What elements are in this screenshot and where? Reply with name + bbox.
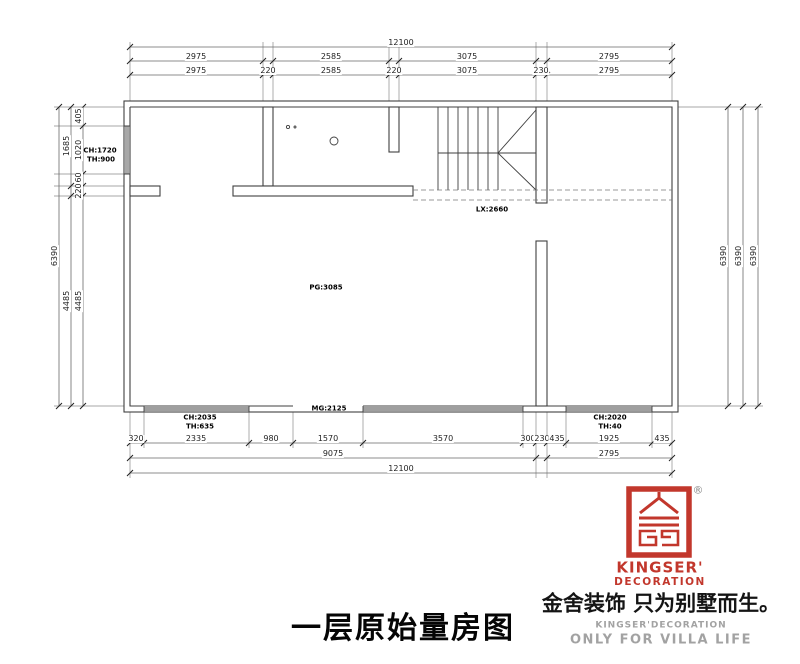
bottom-window-2	[363, 406, 523, 412]
plan-label: MG:2125	[311, 406, 348, 413]
dim-label: 980	[262, 435, 279, 443]
plan-label: CH:2035	[182, 415, 217, 422]
plan-label: TH:900	[86, 157, 116, 164]
dim-label: 2795	[598, 53, 620, 61]
walls	[124, 101, 678, 412]
window-symbols	[124, 126, 652, 412]
bottom-window-3	[566, 406, 652, 412]
dim-label: 230	[532, 67, 549, 75]
dim-label: 220	[259, 67, 276, 75]
logo-wordmark: KINGSER'	[616, 561, 703, 576]
dimension-ticks	[56, 44, 761, 476]
dim-label: 435	[653, 435, 670, 443]
dim-label: 220	[385, 67, 402, 75]
dim-label: 2335	[185, 435, 207, 443]
dim-label: 4485	[75, 290, 83, 312]
plan-label: TH:635	[185, 424, 215, 431]
dim-label: 6390	[720, 245, 728, 267]
drawing-page: 1210029752585307527952975220258522030752…	[0, 0, 800, 664]
plan-label: PG:3085	[308, 285, 343, 292]
brand-slogan: 金舍装饰 只为别墅而生。	[542, 593, 780, 614]
left-wall-window	[124, 126, 130, 174]
dim-label: 2585	[320, 53, 342, 61]
brand-name-en: KINGSER'DECORATION	[595, 622, 726, 631]
dim-label: 2585	[320, 67, 342, 75]
dim-label: 9075	[322, 450, 344, 458]
dim-label: 405	[75, 107, 83, 124]
brand-tagline-en: ONLY FOR VILLA LIFE	[570, 634, 752, 647]
dim-label: 3075	[456, 67, 478, 75]
dim-label: 2795	[598, 450, 620, 458]
dim-label: 1570	[317, 435, 339, 443]
logo-wordmark-sub: DECORATION	[614, 577, 706, 588]
registered-mark: ®	[693, 485, 704, 496]
staircase	[438, 107, 536, 190]
bottom-window-1	[144, 406, 249, 412]
plan-label: LX:2660	[475, 207, 509, 214]
dim-label: 12100	[387, 465, 414, 473]
plan-label: TH:40	[597, 424, 622, 431]
kitchen-fixture-icon	[286, 125, 338, 145]
dim-label: 1925	[598, 435, 620, 443]
dim-label: 2975	[185, 67, 207, 75]
dim-label: 2795	[598, 67, 620, 75]
dim-label: 435	[548, 435, 565, 443]
dim-label: 4485	[63, 290, 71, 312]
dim-label: 6390	[750, 245, 758, 267]
dim-label: 1685	[63, 135, 71, 157]
kingser-logo-icon	[626, 486, 696, 560]
dim-label: 3570	[432, 435, 454, 443]
dim-label: 6390	[735, 245, 743, 267]
dim-label: 2975	[185, 53, 207, 61]
dimension-lines	[59, 47, 758, 473]
dim-label: 320	[127, 435, 144, 443]
dim-label: 220	[75, 182, 83, 199]
dim-label: 12100	[387, 39, 414, 47]
dim-label: 3075	[456, 53, 478, 61]
plan-label: CH:1720	[82, 148, 117, 155]
dim-label: 6390	[51, 245, 59, 267]
plan-label: CH:2020	[592, 415, 627, 422]
drawing-title: 一层原始量房图	[291, 614, 515, 644]
